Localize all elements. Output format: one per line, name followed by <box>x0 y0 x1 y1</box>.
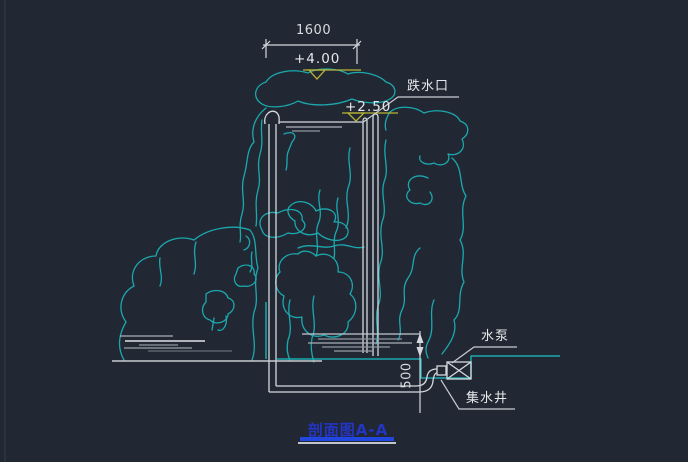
leader-pump <box>452 347 517 363</box>
label-drop-outlet: 跌水口 <box>407 80 449 93</box>
pump-coupling-icon <box>437 366 446 375</box>
dimension-500 <box>417 331 424 413</box>
pump-symbol <box>437 362 471 379</box>
elevation-weir-text: +2.50 <box>345 101 391 115</box>
dimension-500-text: 500 <box>401 361 414 391</box>
dimension-arrow-down-icon <box>417 347 424 357</box>
elevation-crest-text: +4.00 <box>294 53 340 67</box>
cad-viewport[interactable]: 1600 +4.00 +2.50 跌水口 水泵 集水井 500 剖面图A-A <box>0 0 688 462</box>
waterfall-structure <box>265 111 437 392</box>
dimension-1600-text: 1600 <box>296 24 331 37</box>
title-underline-gray <box>298 442 396 444</box>
label-pump: 水泵 <box>481 330 509 343</box>
section-drawing <box>0 0 688 462</box>
label-sump-well: 集水井 <box>466 392 508 405</box>
rockery-outline <box>120 69 468 362</box>
title-underline-blue <box>300 437 394 441</box>
